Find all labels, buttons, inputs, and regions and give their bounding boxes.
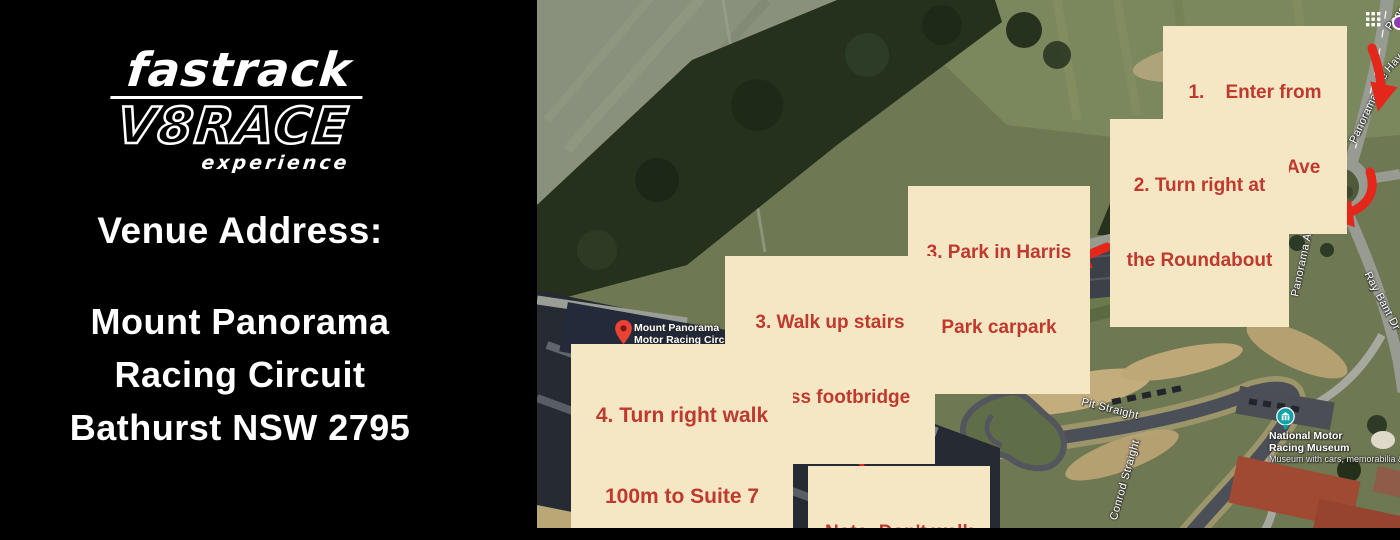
instruction-line: 4. Turn right walk: [577, 402, 787, 429]
instruction-line: 100m to Suite 7: [577, 483, 787, 510]
instruction-line: Park carpark: [914, 315, 1084, 340]
address-line-1: Mount Panorama: [0, 295, 480, 348]
instruction-line: 3. Park in Harris: [914, 240, 1084, 265]
left-panel: fastrack V8RACE experience Venue Address…: [0, 0, 537, 540]
logo-fastrack-text: fastrack: [107, 48, 372, 94]
venue-address: Mount Panorama Racing Circuit Bathurst N…: [0, 295, 480, 454]
map-bottom-black-bar: [537, 528, 1400, 540]
logo-v8race-text: V8RACE: [101, 100, 366, 152]
instruction-step-3-park: 3. Park in Harris Park carpark: [908, 186, 1090, 394]
instruction-line: 3. Walk up stairs: [731, 310, 929, 335]
instruction-line: 2. Turn right at: [1116, 173, 1283, 198]
instruction-step-4-suite: 4. Turn right walk 100m to Suite 7: [571, 344, 793, 540]
address-line-2: Racing Circuit: [0, 348, 480, 401]
instruction-line: 1. Enter from: [1169, 80, 1341, 105]
account-dot-icon: [1392, 15, 1400, 30]
address-line-3: Bathurst NSW 2795: [0, 401, 480, 454]
venue-address-heading: Venue Address:: [0, 210, 480, 252]
venue-directions-banner: fastrack V8RACE experience Venue Address…: [0, 0, 1400, 540]
apps-grid-icon: [1366, 12, 1381, 27]
logo-experience-text: experience: [98, 152, 360, 174]
instruction-step-2-roundabout: 2. Turn right at the Roundabout: [1110, 119, 1289, 327]
map-panel: Pit Straight Conrod Straight Ray Bant Dr…: [537, 0, 1400, 540]
fastrack-v8race-logo: fastrack V8RACE experience: [98, 48, 371, 174]
instruction-line: the Roundabout: [1116, 248, 1283, 273]
